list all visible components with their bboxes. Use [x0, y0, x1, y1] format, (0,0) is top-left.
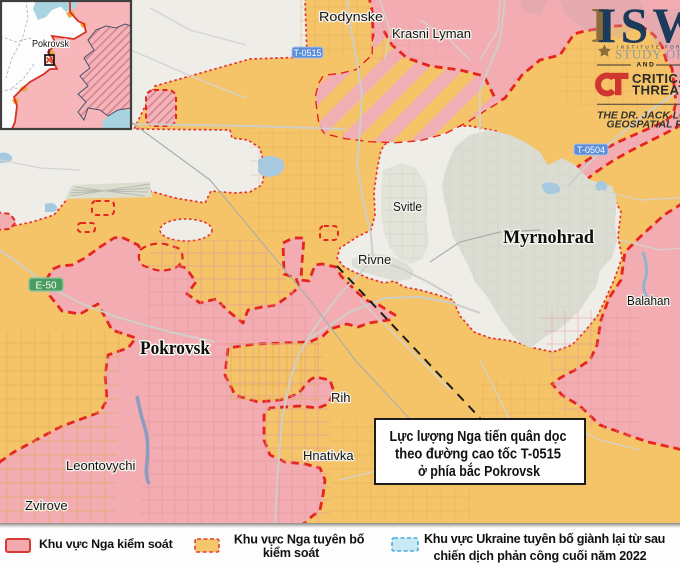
svg-text:theo đường cao tốc T-0515: theo đường cao tốc T-0515 [395, 447, 561, 463]
svg-text:Rih: Rih [331, 390, 351, 405]
svg-text:E-50: E-50 [35, 281, 57, 292]
svg-text:AND: AND [637, 62, 656, 69]
svg-text:Svitle: Svitle [393, 199, 422, 214]
svg-text:Rivne: Rivne [358, 252, 391, 267]
svg-text:ở phía bắc Pokrovsk: ở phía bắc Pokrovsk [418, 462, 541, 480]
svg-text:STUDY OF WA: STUDY OF WA [615, 47, 680, 62]
svg-text:Krasni Lyman: Krasni Lyman [392, 26, 471, 41]
svg-text:Myrnohrad: Myrnohrad [503, 227, 594, 248]
svg-text:Pokrovsk: Pokrovsk [140, 338, 210, 359]
svg-text:chiến dịch phản công cuối năm: chiến dịch phản công cuối năm 2022 [434, 549, 647, 563]
svg-text:Pokrovsk: Pokrovsk [32, 39, 70, 50]
svg-text:Leontovychi: Leontovychi [66, 458, 135, 473]
svg-text:THREATS: THREATS [632, 83, 680, 98]
svg-text:Zvirove: Zvirove [25, 498, 68, 513]
svg-text:Khu vực Ukraine tuyên bố giành: Khu vực Ukraine tuyên bố giành lại từ sa… [424, 532, 665, 546]
svg-text:Rodynske: Rodynske [319, 9, 383, 24]
svg-text:GEOSPATIAL FUND: GEOSPATIAL FUND [607, 120, 680, 131]
svg-text:kiểm soát: kiểm soát [263, 546, 320, 560]
svg-text:Lực lượng Nga tiến quân dọc: Lực lượng Nga tiến quân dọc [390, 429, 567, 445]
svg-text:Khu vực Nga kiểm soát: Khu vực Nga kiểm soát [39, 537, 173, 551]
svg-text:T-0504: T-0504 [577, 145, 605, 155]
svg-text:Hnativka: Hnativka [303, 448, 354, 463]
svg-text:Khu vực Nga tuyên bố: Khu vực Nga tuyên bố [234, 533, 365, 547]
svg-text:T-0515: T-0515 [293, 48, 321, 58]
svg-text:Balahan: Balahan [627, 293, 670, 308]
